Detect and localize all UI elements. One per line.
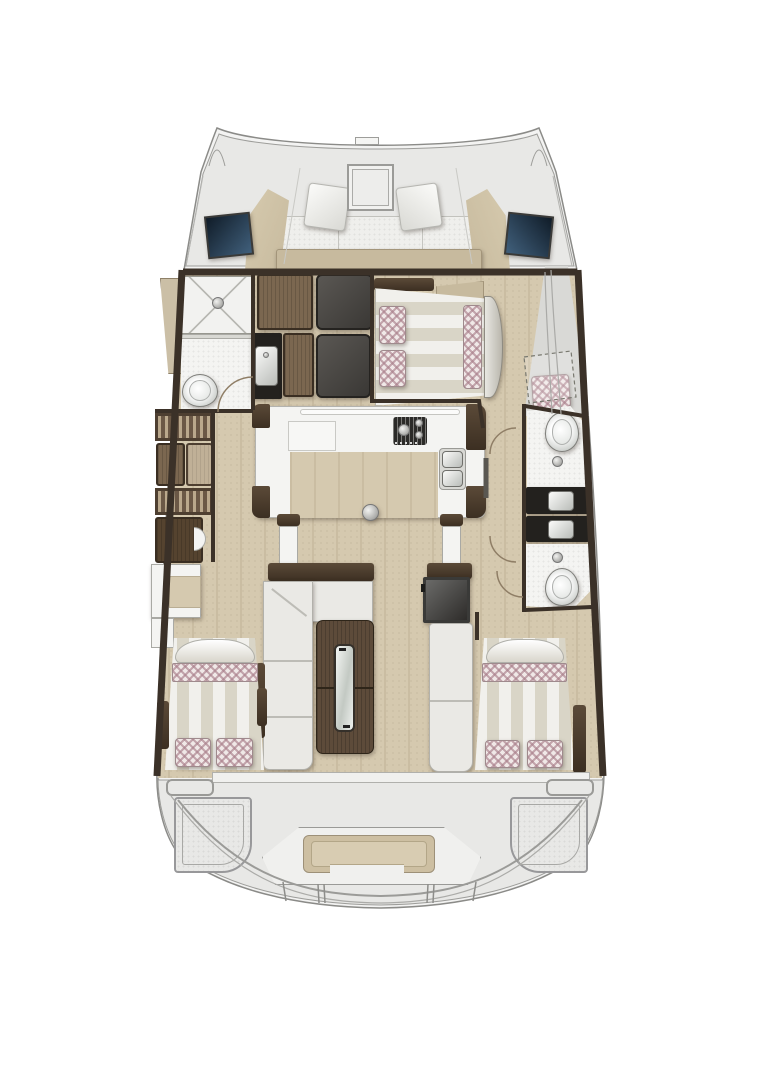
stbd-toilet-fwd [545,412,579,452]
stbd-aft-headboard [486,639,564,663]
port-aft-pillow [216,738,253,767]
fridge-handle [421,584,425,592]
hanging-locker [155,413,213,441]
hull-step [151,618,174,648]
port-berth-trim [157,701,169,749]
stbd-head-aft-drain [552,552,563,563]
hanging-locker [155,488,213,515]
fwd-berth-blanket-band [463,305,482,389]
stbd-aft-blanket-band [482,663,567,682]
sofa-seam [264,660,312,662]
stub-wall-cap [277,514,300,526]
desk-notch [169,576,201,608]
port-berth-trim [257,688,267,726]
stbd-washbasin-fwd [548,491,574,511]
counter-corner-trim [466,404,486,450]
sofa-back-beam [268,563,374,581]
l-sofa-side [263,581,313,770]
stern-side-tab [546,779,594,796]
stove-burner-large [398,424,410,436]
stbd-berth-trim [573,705,586,773]
shower-drain [212,297,224,309]
hull-cabinet [156,443,185,486]
catamaran-floorplan [0,0,763,1080]
starboard-window [504,212,554,260]
port-toilet [182,374,218,407]
wedge-cushion-right [395,182,443,231]
counter-corner-trim [252,486,270,518]
stbd-head-fwd-drain [552,456,563,467]
bench-seam [430,700,472,702]
fridge-box [423,577,470,623]
stern-side-tab [166,779,214,796]
bench-seat [429,623,473,772]
fwd-berth-pillow [379,350,406,387]
wardrobe-panel [283,333,314,397]
sofa-seam [264,716,312,718]
counter-corner-trim [252,404,270,428]
worktop-lid [288,421,336,451]
port-basin-faucet [263,352,269,358]
side-deck-seat-cushion [531,374,571,411]
stub-wall [279,526,298,564]
stbd-toilet-aft [545,568,579,606]
stbd-corner-locker-inner [518,804,580,865]
anchor-fitting [355,137,379,145]
stove-burner-small [415,419,423,427]
transom-band [212,772,590,783]
stub-wall [442,526,461,564]
wardrobe-panel-gray [316,334,371,398]
wardrobe-panel-gray [316,274,373,330]
sink-basin [442,451,463,468]
deck-hatch-inner [352,169,389,206]
wedge-cushion-left [303,182,351,231]
stub-wall-cap [440,514,463,526]
port-aft-headboard [175,639,255,663]
table-glass-hinge [339,648,346,651]
fwd-berth-pillow [379,306,406,344]
stbd-washbasin-aft [548,520,574,539]
table-glass-insert [334,644,355,732]
cockpit-aft-beige-band [276,249,482,272]
port-corner-locker-inner [182,804,244,865]
port-window [204,212,254,260]
wardrobe-panel [257,274,313,330]
port-aft-blanket-band [172,663,258,682]
port-aft-pillow [175,738,211,767]
stbd-aft-pillow [485,740,520,768]
stove-burner-small [415,431,423,439]
floor-fitting [362,504,379,521]
galley-back-edge [300,409,460,415]
counter-corner-trim [466,486,486,518]
table-glass-hinge [343,725,350,728]
hull-cabinet-light [186,443,213,486]
stbd-aft-pillow [527,740,563,768]
sink-basin [442,470,463,487]
stern-bench-notch [330,864,404,873]
stove-knobs [395,442,417,444]
